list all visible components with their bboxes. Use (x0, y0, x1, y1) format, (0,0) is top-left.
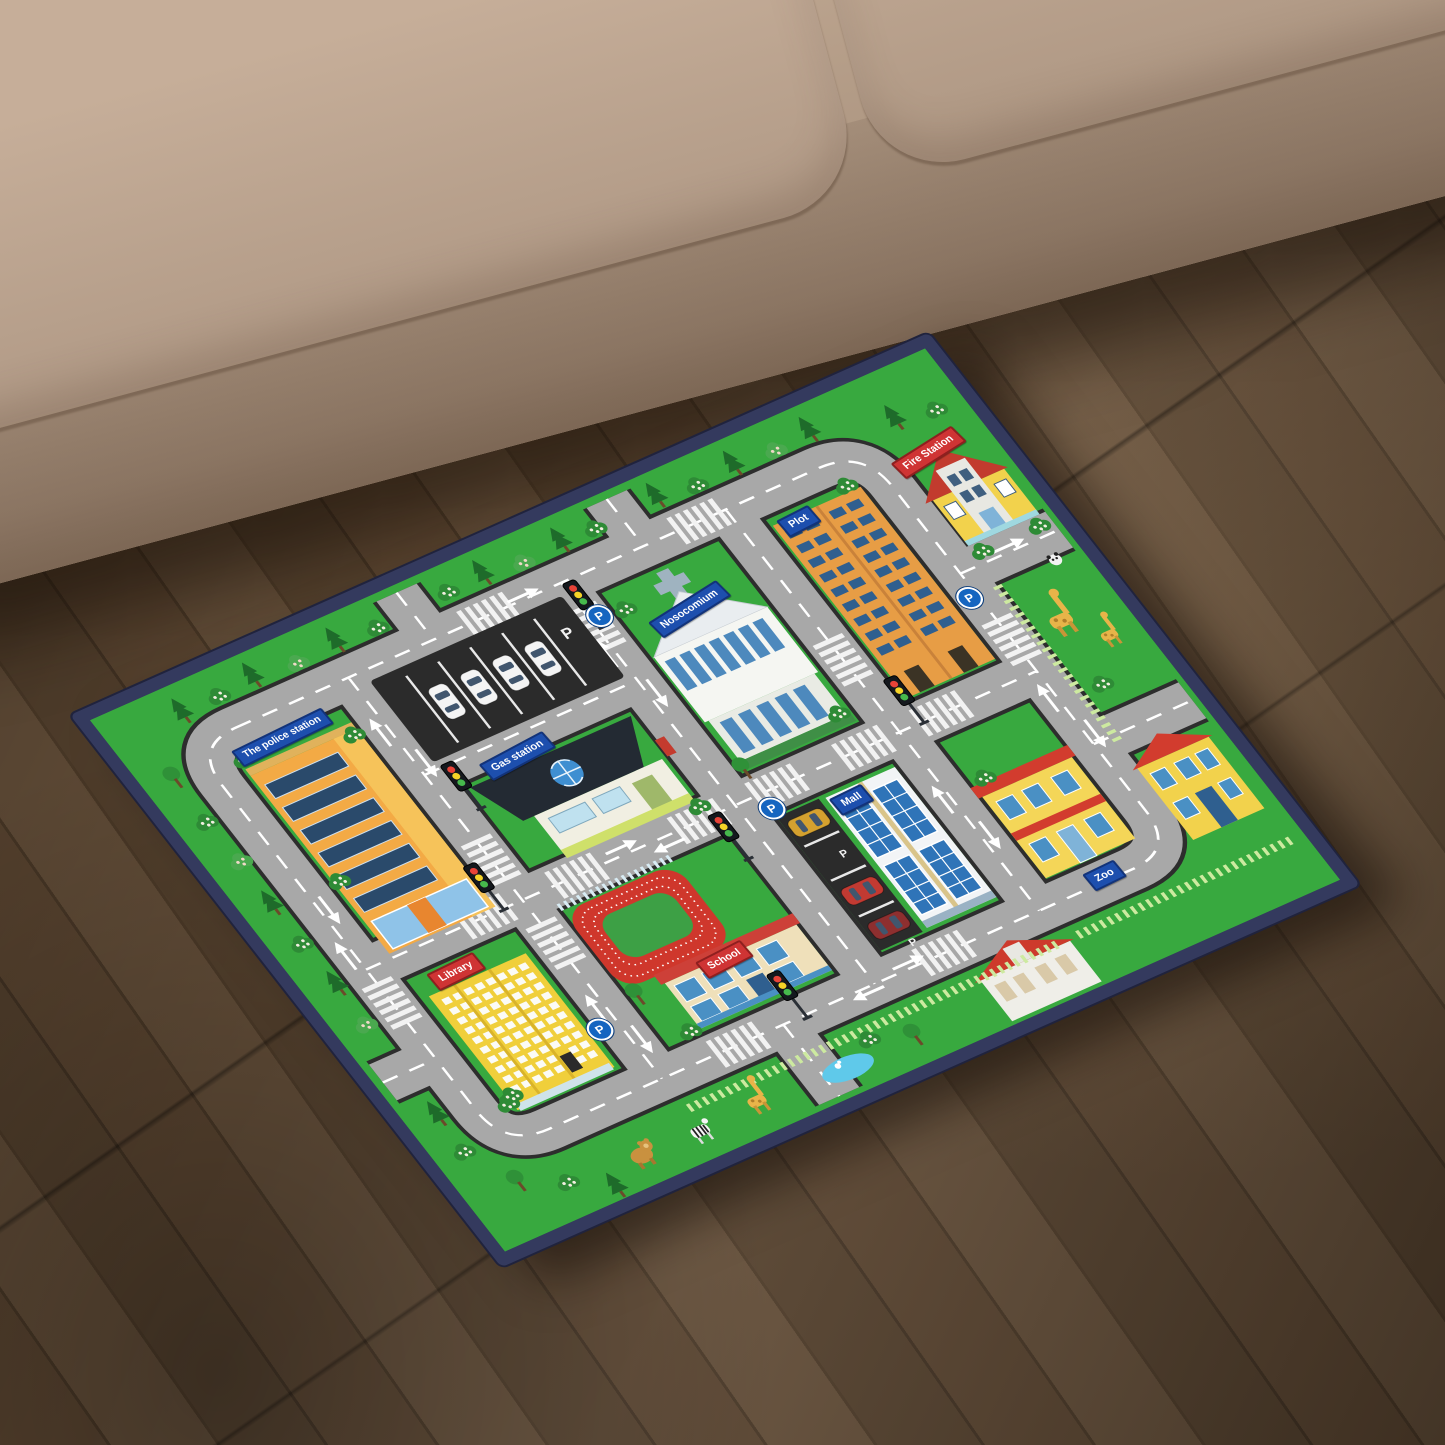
sofa-seat-cushion (701, 0, 1445, 181)
scene: The police station Gas station Nosocomiu… (0, 0, 1445, 1445)
